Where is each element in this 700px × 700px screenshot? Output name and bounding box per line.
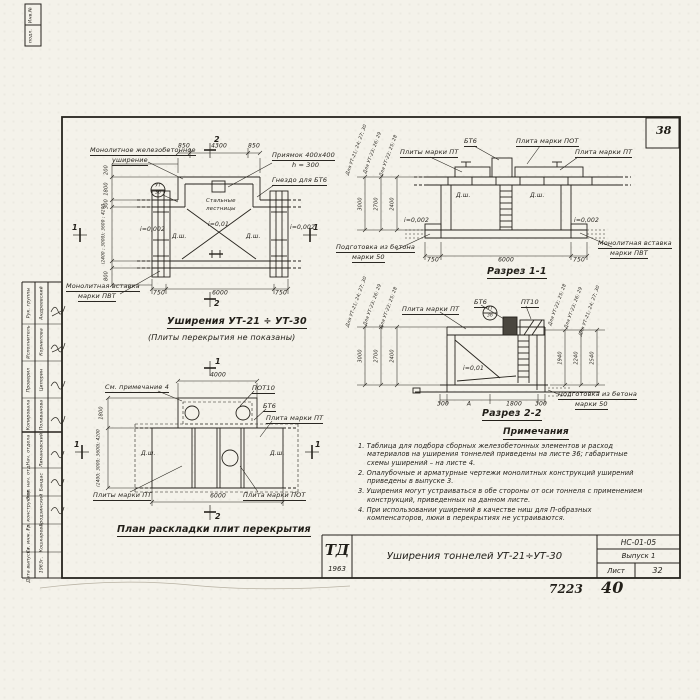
stamp-role: Копировала	[26, 400, 31, 431]
dim-applicability: Для УТ-23; 26; 29	[363, 131, 383, 174]
stamp-top-note-2: подл.	[28, 29, 33, 43]
stamp-top-note-1: Инв.№	[28, 7, 33, 23]
dim-750-right: 750	[275, 291, 287, 298]
label-see-note-4: См. примечание 4	[105, 384, 169, 393]
plan-widening-title: Уширения УТ-21 ÷ УТ-30	[167, 317, 307, 329]
section-mark-2-top: 2	[214, 136, 220, 145]
notes-title: Примечания	[503, 428, 569, 440]
stamp-name: Ципорин	[39, 369, 44, 391]
detail-bubble-top: УТ	[155, 185, 161, 190]
deformation-joint-right: Д.ш.	[246, 234, 261, 241]
plan-slabs-title: План раскладки плит перекрытия	[117, 525, 311, 537]
label-ladders-2: лестницы	[206, 206, 236, 212]
dim-850-left: 850	[178, 144, 190, 151]
label-pt10: ПТ10	[521, 299, 539, 308]
handwritten-doc-number: 7223	[549, 583, 583, 596]
deformation-joint-left: Д.ш.	[141, 451, 156, 458]
drawing-line-art	[0, 0, 700, 700]
dim-applicability: Для УТ-23; 26; 29	[363, 283, 383, 326]
label-pit-1: Приямок 400х400	[272, 152, 335, 161]
stamp-name: Кошкарева	[39, 524, 44, 552]
plan-widening-subtitle: (Плиты перекрытия не показаны)	[148, 334, 295, 343]
blueprint-sheet: { "sheet": { "corner_number": "38", "doc…	[0, 0, 700, 700]
slope-left: i=0,002	[140, 227, 165, 234]
dim-applicability: Для УТ-22; 25; 28	[548, 283, 568, 326]
slope-right: i=0,002	[574, 218, 599, 225]
dim-750-right: 750	[573, 258, 585, 265]
note-item: 3. Уширения могут устраиваться в обе сто…	[358, 487, 650, 504]
titleblock-sheet-label: Лист	[597, 563, 635, 578]
dim-height-2400: 2400	[390, 197, 396, 210]
dim-height-3000: 3000	[358, 349, 364, 362]
stamp-name: Бандас	[39, 473, 44, 491]
dim-6000: 6000	[498, 258, 514, 265]
label-plates-pt: Плиты марки ПТ	[93, 492, 151, 501]
note-item: 2. Опалубочные и арматурные чертежи моно…	[358, 469, 650, 486]
label-concrete-prep-1: Подготовка из бетона	[336, 244, 415, 253]
notes-list: 1. Таблица для подбора сборных железобет…	[358, 442, 650, 524]
dim-left-200: 200	[104, 165, 110, 175]
dim-height-2400: 2400	[390, 349, 396, 362]
stamp-name: Гродзинский	[39, 494, 44, 527]
stamp-name: Андреевский	[39, 286, 44, 320]
dim-applicability: Для УТ-23; 26; 29	[564, 286, 584, 329]
dim-applicability: Для УТ-22; 25; 28	[379, 286, 399, 329]
label-bt6: БТ6	[474, 299, 487, 308]
dim-750-left: 750	[427, 258, 439, 265]
dim-height-2540: 2540	[590, 351, 596, 364]
label-ladders-1: Стальные	[206, 198, 236, 204]
label-concrete-prep-1: Подготовка из бетона	[558, 391, 637, 400]
section-mark-1-right: 1	[315, 441, 321, 450]
slope-label: i=0,01	[463, 366, 484, 373]
label-concrete-prep-2: марки 50	[352, 254, 385, 263]
stamp-name: Поливанова	[39, 400, 44, 431]
dim-left-1800: 1800	[99, 406, 105, 419]
dim-height-3000: 3000	[358, 197, 364, 210]
deformation-joint-right: Д.ш.	[270, 451, 285, 458]
stamp-name: Корнилова	[39, 328, 44, 356]
dim-left-1800: 1800	[104, 182, 110, 195]
label-pit-2: h = 300	[292, 162, 319, 169]
handwritten-page-number: 40	[601, 579, 624, 597]
note-item: 1. Таблица для подбора сборных железобет…	[358, 442, 650, 467]
dim-applicability: Для УТ-22; 25; 28	[379, 134, 399, 177]
stamp-name: Лимановский	[39, 433, 44, 467]
dim-left-800: 800	[104, 271, 110, 281]
label-plates-pt: Плиты марки ПТ	[400, 149, 458, 158]
dim-left-heights: (2400 ; 3000); 3600 ; 4200	[102, 204, 107, 265]
logo-td: ТД	[322, 536, 352, 564]
detail-bubble-top: УТ	[487, 308, 493, 313]
dim-a: А	[467, 402, 471, 409]
label-monolithic-insert-1: Монолитная вставка	[66, 283, 140, 292]
dim-750-left: 750	[153, 291, 165, 298]
note-item: 4. При использовании уширений в качестве…	[358, 506, 650, 523]
stamp-role: Рук. группы	[26, 288, 31, 319]
label-plate-pot: Плита марки ПОТ	[243, 492, 306, 501]
stamp-role: Проверил	[26, 368, 31, 393]
stamp-name: 1963г.	[39, 557, 44, 573]
section-mark-2-bottom: 2	[215, 513, 221, 522]
corner-page-number: 38	[656, 125, 672, 137]
slope-left: i=0,002	[404, 218, 429, 225]
label-monolithic-insert-2: марки ПВТ	[610, 250, 648, 259]
titleblock-sheet-number: 32	[635, 563, 680, 578]
dim-6000: 6000	[210, 494, 226, 501]
label-plate-pt: Плита марки ПТ	[266, 415, 323, 424]
section-mark-1-left: 1	[72, 224, 78, 233]
label-socket-bt6: Гнездо для БТ6	[272, 177, 327, 186]
slope-center: i=0,01	[208, 222, 229, 229]
deformation-joint-right: Д.ш.	[530, 193, 545, 200]
titleblock-doc-code: НС-01-05	[597, 535, 680, 549]
label-monolithic-widening-2: уширение	[112, 157, 148, 166]
dim-height-2700: 2700	[374, 197, 380, 210]
detail-bubble-bottom: 36	[487, 315, 493, 320]
dim-height-2240: 2240	[574, 351, 580, 364]
label-bt6: БТ6	[464, 138, 477, 147]
deformation-joint-left: Д.ш.	[456, 193, 471, 200]
dim-height-1940: 1940	[558, 351, 564, 364]
section-2-2-title: Разрез 2-2	[482, 409, 542, 421]
label-plate-pot: Плита марки ПОТ	[516, 138, 579, 147]
detail-bubble-bottom: 36	[155, 192, 161, 197]
logo-year: 1963	[322, 562, 352, 576]
label-concrete-prep-2: марки 50	[575, 401, 608, 410]
slope-right: i=0,002	[290, 225, 315, 232]
dim-6000: 6000	[212, 291, 228, 298]
section-1-1-title: Разрез 1-1	[487, 267, 547, 279]
dim-4000: 4000	[210, 373, 226, 380]
dim-850-right: 850	[248, 144, 260, 151]
label-pot10: ПОТ10	[252, 385, 275, 394]
deformation-joint-left: Д.ш.	[172, 234, 187, 241]
label-monolithic-insert-1: Монолитная вставка	[598, 240, 672, 249]
label-plate-pt: Плита марки ПТ	[402, 306, 459, 315]
stamp-role: Исполнитель	[26, 325, 31, 359]
titleblock-title: Уширения тоннелей УТ-21÷УТ-30	[352, 535, 597, 578]
label-plate-pt: Плита марки ПТ	[575, 149, 632, 158]
dim-300-left: 300	[437, 402, 449, 409]
label-monolithic-insert-2: марки ПВТ	[78, 293, 116, 302]
section-mark-1-left: 1	[74, 441, 80, 450]
dim-height-2700: 2700	[374, 349, 380, 362]
section-mark-2-bottom: 2	[214, 300, 220, 309]
section-mark-1-right: 1	[313, 224, 319, 233]
label-bt6: БТ6	[263, 403, 276, 412]
titleblock-issue: Выпуск 1	[597, 549, 680, 563]
stamp-role: Дата выпуска	[26, 547, 31, 582]
section-mark-1-top: 1	[215, 358, 221, 367]
dim-left-heights: (2400; 3000; 3600); 4200	[97, 429, 102, 487]
stamp-role: Нач. отдела	[26, 435, 31, 466]
